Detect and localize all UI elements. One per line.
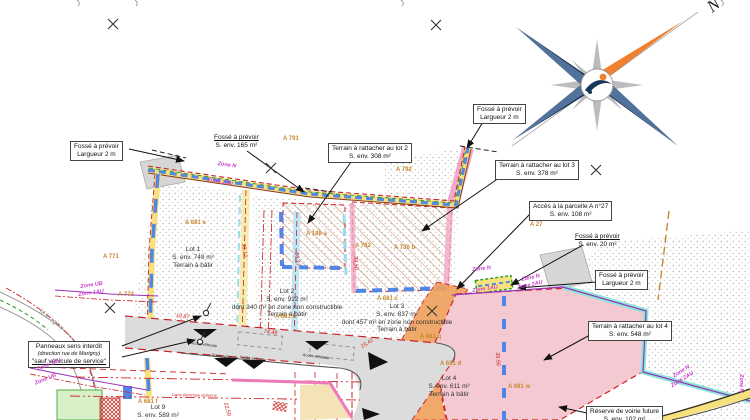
annotation-fosse-largueur-2: Fossé à prévoir Largueur 2 m — [473, 104, 526, 124]
dimension: 39,50 — [352, 256, 359, 270]
annotation-fosse-20: Fossé à prévoir S. env. 20 m² — [575, 233, 620, 249]
plan-drawing — [0, 0, 750, 420]
building — [540, 247, 592, 290]
easement-label: Ligne électrique aérienne — [172, 392, 217, 398]
lot-1-label: Lot 1 S. env. 749 m² Terrain à bâtir — [148, 246, 238, 269]
parcel-ref: A 681 c — [377, 296, 398, 302]
annotation-fosse-largueur-3: Fossé à prévoir Largueur 2 m — [595, 270, 648, 290]
parcel-ref: A 782 — [355, 243, 371, 249]
annotation-terrain-lot4: Terrain à rattacher au lot 4 S. env. 548… — [588, 321, 672, 341]
parcel-ref: A 791 — [283, 136, 299, 142]
grid-coordinate-fragments — [77, 0, 723, 6]
parcel-ref: A 681 f — [138, 399, 157, 405]
parcel-ref: A 771 — [103, 254, 119, 260]
dimension: 39,56 — [494, 352, 501, 366]
zone-label: Zone N — [738, 374, 744, 393]
parcel-ref: A 27 — [530, 222, 542, 228]
parcel-ref: A 772 — [118, 292, 134, 298]
parcel-ref: A 681 b — [275, 314, 296, 320]
parcel-ref: A 792 — [396, 167, 412, 173]
parcel-ref: A 188 a — [306, 231, 327, 237]
parcel-ref: A 681 q — [420, 334, 441, 340]
parcel-ref: A 730 b — [394, 245, 415, 251]
cadastral-plan: N Fossé à prévoir Largueur 2 m Fossé à p… — [0, 0, 750, 420]
annotation-reserve-voirie: Réserve de voirie future S. env. 102 m² — [586, 406, 663, 420]
parcel-ref: A 681 d — [440, 361, 461, 367]
lot-4-label: Lot 4 S. env. 611 m² Terrain à bâtir — [404, 375, 494, 398]
lot-3-label: Lot 3 S. env. 837 m² dont 457 m² en zone… — [332, 303, 462, 334]
annotation-terrain-lot2: Terrain à rattacher au lot 2 S. env. 308… — [328, 143, 412, 163]
annotation-fosse-165: Fossé à prévoir S. env. 165 m² — [214, 134, 259, 150]
lot-9-label: Lot 9 S. env. 589 m² — [113, 404, 203, 420]
compass-rose — [512, 12, 698, 146]
annotation-acces-parcelle-a27: Accès à la parcelle A n°27 S. env. 108 m… — [529, 201, 612, 221]
pink-parcel — [433, 288, 645, 420]
annotation-fosse-largueur-1: Fossé à prévoir Largueur 2 m — [70, 141, 123, 161]
parcel-ref: A 681 w — [508, 384, 530, 390]
annotation-terrain-lot3: Terrain à rattacher au lot 3 S. env. 378… — [495, 160, 579, 180]
parcel-ref: A 681 e — [185, 220, 206, 226]
